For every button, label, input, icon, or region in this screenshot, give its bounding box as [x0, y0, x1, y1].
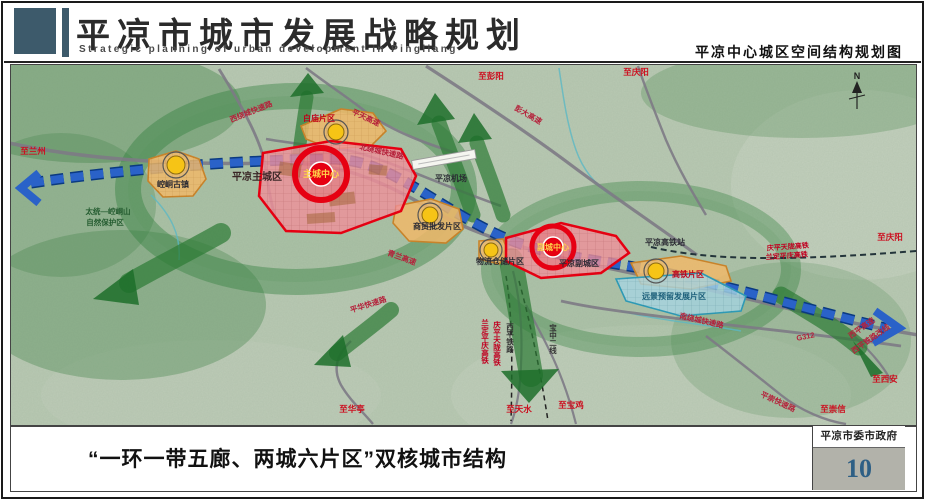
label-rail-baozhong-vert: 宝中二线	[548, 323, 557, 356]
page-subtitle-en: Strategic planning of urban development …	[79, 44, 458, 55]
header-divider	[4, 61, 921, 63]
header-accent-bar	[62, 8, 69, 57]
label-main-core: 主城中心	[303, 168, 339, 179]
footer-organization: 平凉市委市政府	[813, 426, 905, 448]
label-to-qingyang-north: 至庆阳	[623, 67, 649, 77]
label-sub-core: 副城中心	[537, 242, 569, 252]
label-to-baoji: 至宝鸡	[558, 400, 584, 410]
label-to-chongxin: 至崇信	[820, 404, 846, 414]
compass-n-label: N	[854, 71, 861, 81]
label-zone-logistics: 物流仓储片区	[476, 256, 524, 266]
footer-info-box: 平凉市委市政府 10	[812, 426, 905, 490]
label-to-xian: 至西安	[872, 374, 898, 384]
label-zone-reserve: 远景预留发展片区	[642, 291, 706, 301]
label-to-tianshui: 至天水	[506, 404, 532, 414]
label-airport: 平凉机场	[435, 173, 467, 183]
label-rail-ldpq-vert: 兰定平庆高铁	[480, 318, 489, 366]
label-zone-baimiao: 白庙片区	[303, 113, 335, 123]
map-title: 平凉中心城区空间结构规划图	[695, 42, 903, 62]
label-nature-reserve-2: 自然保护区	[86, 217, 124, 227]
label-zone-kongtong: 崆峒古镇	[157, 179, 189, 189]
slide-page: 平凉市城市发展战略规划 Strategic planning of urban …	[0, 0, 925, 500]
map-canvas: N 至兰州 西绕城快速路 白庙片区 平天高速 至彭阳 彭大高速 至庆阳 北绕城快…	[11, 65, 916, 425]
label-zone-trade: 商贸批发片区	[413, 221, 461, 231]
label-zone-main-city: 平凉主城区	[232, 170, 282, 183]
label-rail-xiping-vert: 西平铁路	[505, 323, 514, 355]
structure-caption: “一环一带五廊、两城六片区”双核城市结构	[88, 443, 507, 473]
label-zone-sub-city: 平凉副城区	[559, 258, 599, 268]
label-to-huating: 至华亭	[339, 404, 365, 414]
label-to-lanzhou: 至兰州	[20, 146, 46, 156]
planning-map: N 至兰州 西绕城快速路 白庙片区 平天高速 至彭阳 彭大高速 至庆阳 北绕城快…	[10, 64, 917, 426]
label-to-qingyang-east: 至庆阳	[877, 232, 903, 242]
label-rail-qptl-vert: 庆平天陇高铁	[492, 320, 501, 368]
label-nature-reserve-1: 太统—崆峒山	[86, 206, 131, 216]
header-logo-block	[14, 8, 56, 54]
label-to-pengyang: 至彭阳	[478, 71, 504, 81]
label-zone-hsr: 高铁片区	[672, 269, 704, 279]
label-hsr-station: 平凉高铁站	[645, 237, 685, 247]
page-number: 10	[813, 448, 905, 490]
